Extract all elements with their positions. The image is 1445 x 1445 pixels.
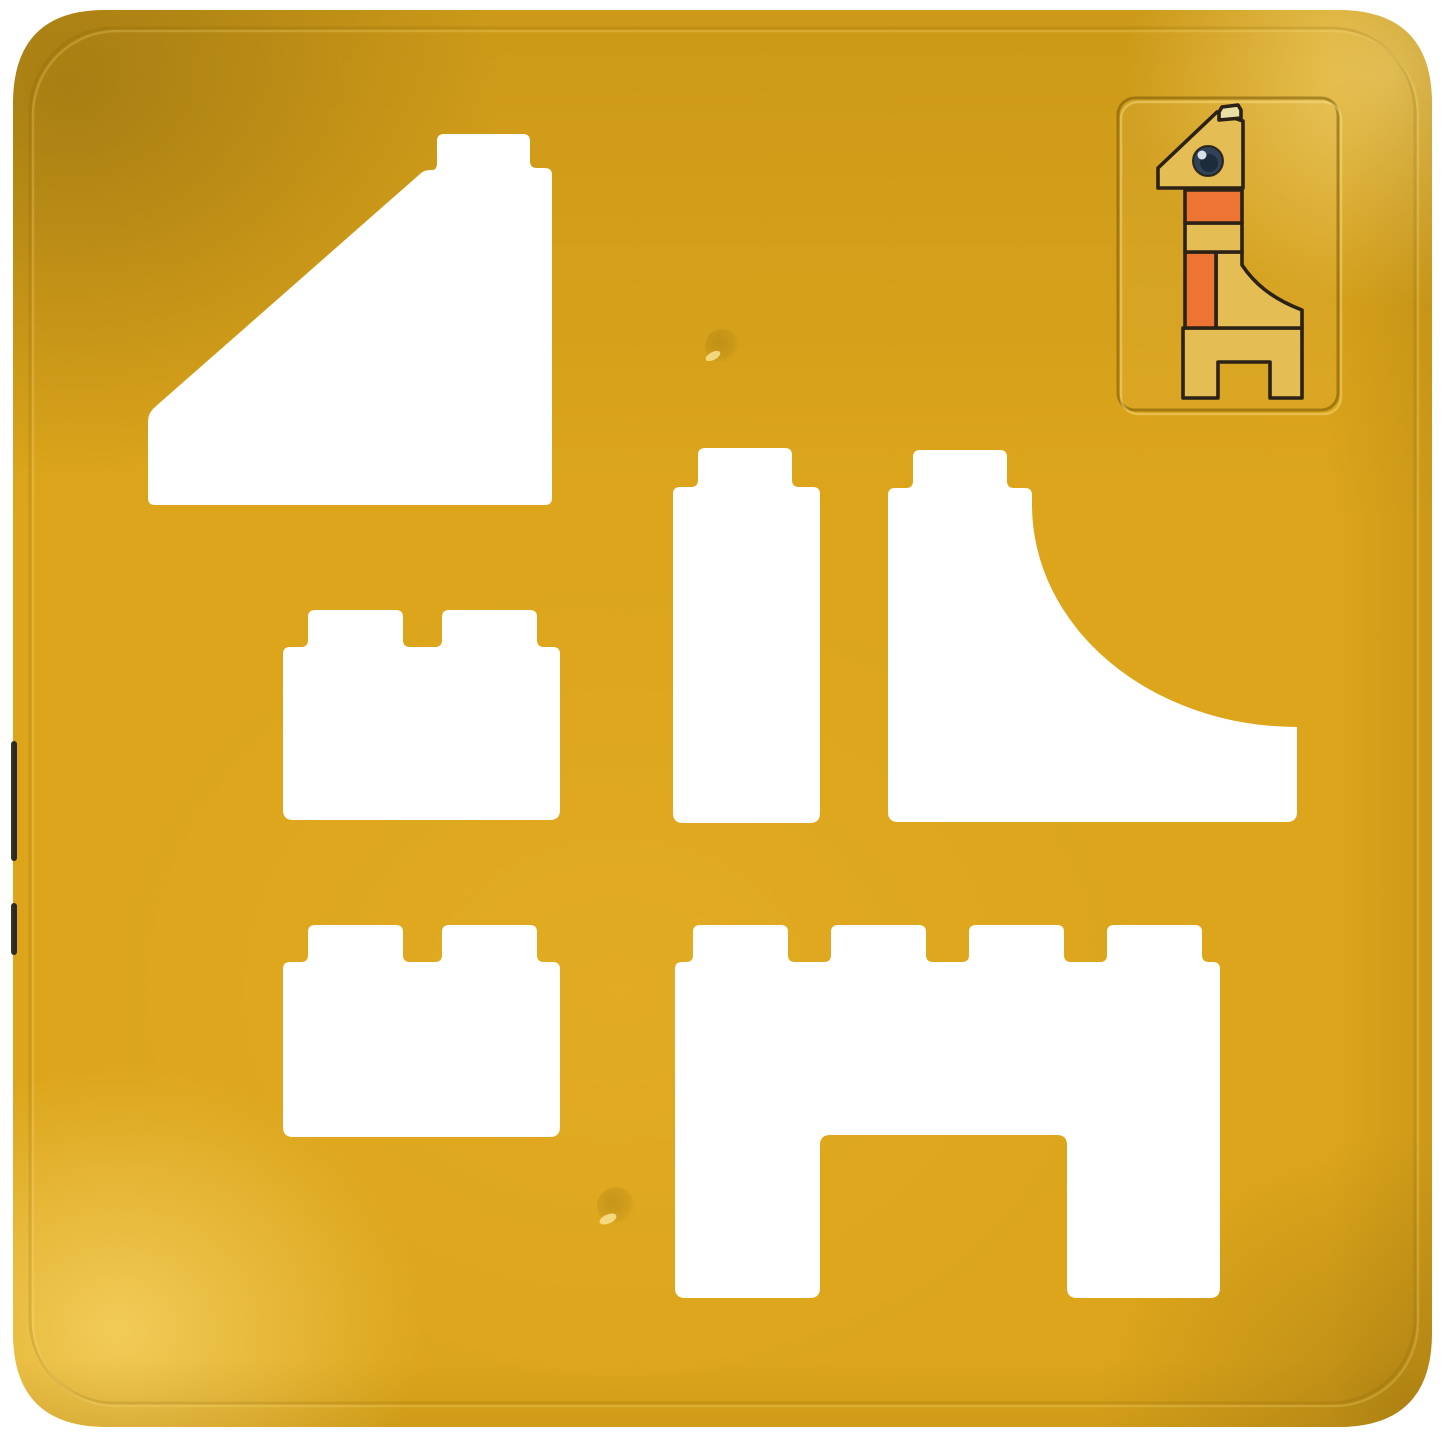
sliver-segment xyxy=(11,903,17,955)
giraffe-eye xyxy=(1193,146,1223,176)
giraffe-head-stud xyxy=(1219,105,1241,120)
photo-canvas xyxy=(0,0,1445,1445)
left-edge-object-sliver xyxy=(11,741,17,955)
giraffe-neck-orange-brick xyxy=(1185,190,1242,223)
eye-glint xyxy=(1198,151,1207,160)
sliver-segment xyxy=(11,741,17,861)
giraffe-neck-yellow-brick xyxy=(1185,223,1242,252)
sorter-panel-photo xyxy=(0,0,1445,1445)
right-edge-shade xyxy=(1330,0,1445,1445)
giraffe-neck-tall-orange-brick xyxy=(1185,252,1216,328)
